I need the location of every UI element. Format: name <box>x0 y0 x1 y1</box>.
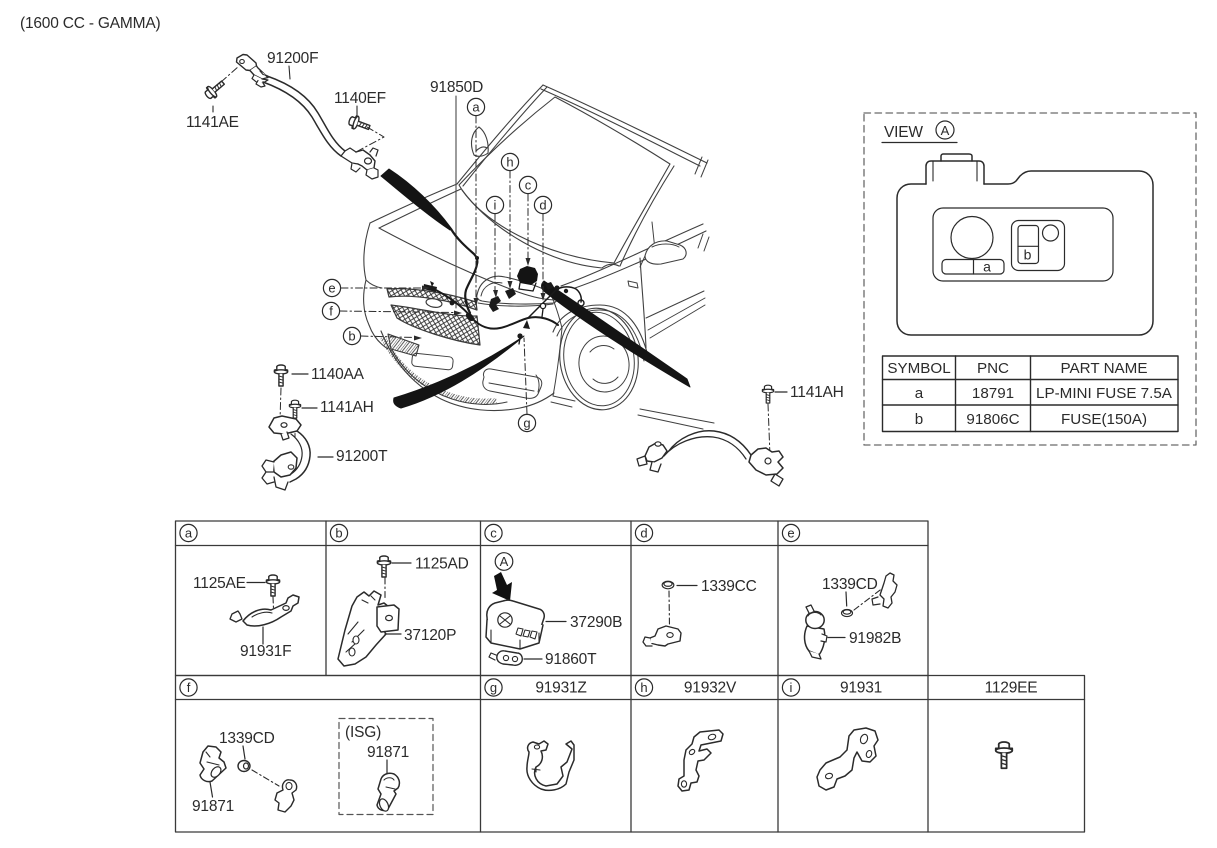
svg-text:a: a <box>185 526 193 541</box>
svg-text:h: h <box>640 680 647 695</box>
svg-text:FUSE(150A): FUSE(150A) <box>1061 411 1147 428</box>
svg-text:f: f <box>329 304 333 319</box>
svg-text:37290B: 37290B <box>570 614 622 631</box>
svg-text:d: d <box>539 198 546 213</box>
svg-text:h: h <box>506 155 513 170</box>
svg-text:e: e <box>328 281 335 296</box>
svg-text:91931F: 91931F <box>240 643 291 660</box>
svg-text:e: e <box>787 526 794 541</box>
svg-text:a: a <box>915 385 924 402</box>
svg-text:1125AD: 1125AD <box>415 556 469 573</box>
svg-text:PART NAME: PART NAME <box>1061 360 1148 377</box>
svg-text:f: f <box>187 680 191 695</box>
svg-text:g: g <box>490 680 497 695</box>
svg-text:a: a <box>472 100 480 115</box>
svg-text:VIEW: VIEW <box>884 124 923 141</box>
svg-text:91871: 91871 <box>367 744 409 761</box>
svg-text:SYMBOL: SYMBOL <box>887 360 950 377</box>
svg-text:91931: 91931 <box>840 680 882 697</box>
svg-text:1140EF: 1140EF <box>334 90 386 107</box>
svg-text:c: c <box>525 178 532 193</box>
svg-text:1129EE: 1129EE <box>985 680 1038 697</box>
svg-text:LP-MINI FUSE 7.5A: LP-MINI FUSE 7.5A <box>1036 385 1173 402</box>
svg-text:(1600 CC - GAMMA): (1600 CC - GAMMA) <box>20 15 160 32</box>
svg-text:d: d <box>640 526 647 541</box>
svg-text:a: a <box>983 259 991 275</box>
svg-text:1339CD: 1339CD <box>219 730 275 747</box>
svg-text:i: i <box>790 680 793 695</box>
svg-text:37120P: 37120P <box>404 627 456 644</box>
svg-text:(ISG): (ISG) <box>345 724 381 741</box>
svg-text:91931Z: 91931Z <box>535 680 586 697</box>
svg-text:91860T: 91860T <box>545 651 597 668</box>
svg-text:b: b <box>335 526 342 541</box>
svg-text:1141AE: 1141AE <box>186 114 239 131</box>
svg-text:A: A <box>500 554 509 569</box>
svg-text:1339CD: 1339CD <box>822 576 878 593</box>
svg-text:g: g <box>523 416 530 431</box>
svg-text:18791: 18791 <box>972 385 1014 402</box>
svg-text:91200T: 91200T <box>336 448 388 465</box>
svg-text:91932V: 91932V <box>684 680 737 697</box>
svg-text:91200F: 91200F <box>267 50 318 67</box>
svg-text:i: i <box>494 198 497 213</box>
svg-text:c: c <box>490 526 497 541</box>
svg-text:A: A <box>941 123 950 138</box>
svg-text:1339CC: 1339CC <box>701 578 757 595</box>
svg-text:91850D: 91850D <box>430 79 483 96</box>
svg-text:91871: 91871 <box>192 798 234 815</box>
svg-text:PNC: PNC <box>977 360 1009 377</box>
svg-text:b: b <box>348 329 355 344</box>
svg-text:1125AE: 1125AE <box>193 575 246 592</box>
svg-text:b: b <box>915 411 923 428</box>
svg-text:91982B: 91982B <box>849 630 901 647</box>
svg-text:1141AH: 1141AH <box>320 399 374 416</box>
svg-text:b: b <box>1024 247 1032 263</box>
svg-text:1141AH: 1141AH <box>790 384 844 401</box>
svg-text:91806C: 91806C <box>966 411 1019 428</box>
svg-text:1140AA: 1140AA <box>311 366 365 383</box>
